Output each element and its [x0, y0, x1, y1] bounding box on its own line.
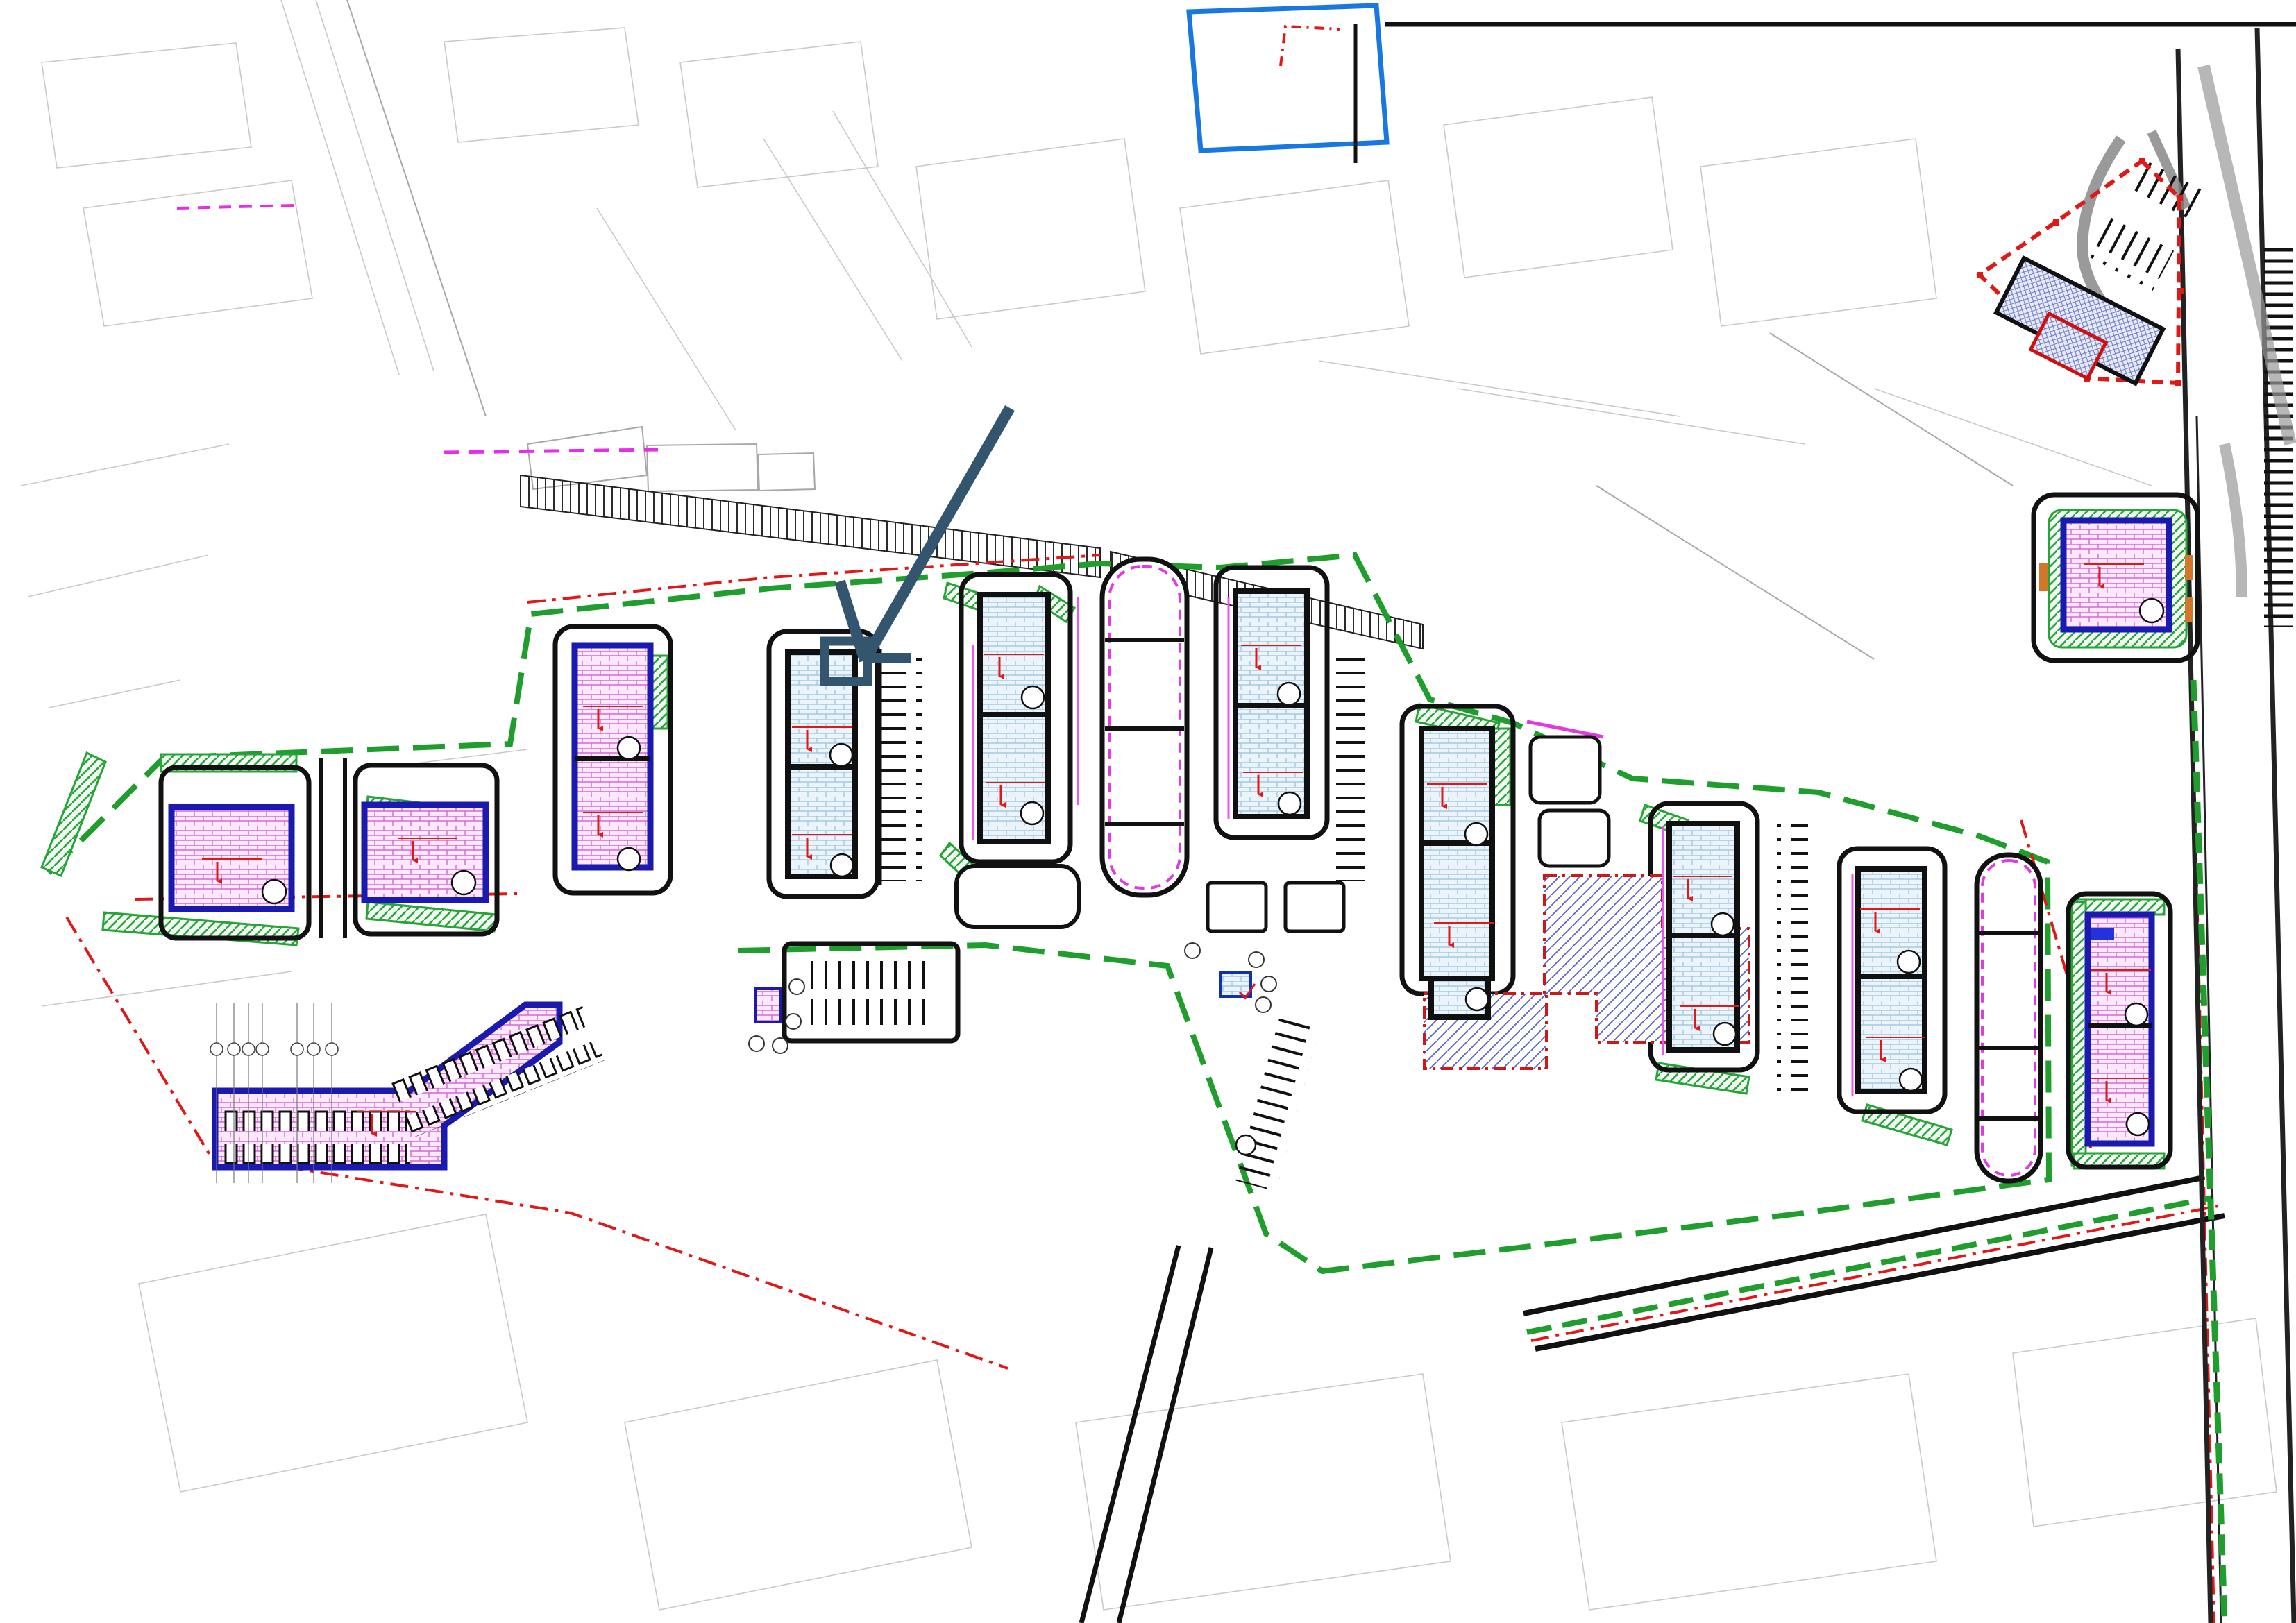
- zone-small-boxes: [1208, 883, 1344, 931]
- building-8: [364, 805, 486, 900]
- site-plan: [0, 0, 2296, 1623]
- zone-under-5: [956, 866, 1079, 927]
- garage-building: [210, 1003, 605, 1183]
- red-boundary-small: [1281, 26, 1340, 66]
- zone-column-d: [1977, 855, 2041, 1181]
- building-4: [1235, 591, 1307, 817]
- building-11: [2088, 915, 2152, 1144]
- building-2: [1669, 824, 1739, 1050]
- entrance-marker: [2091, 928, 2114, 940]
- utility-line-magenta: [444, 450, 658, 452]
- building-10: [2039, 520, 2193, 629]
- building-3: [1421, 729, 1494, 1017]
- building-9: [171, 807, 292, 909]
- utility-line-magenta-2: [177, 205, 295, 208]
- base-map-lines-2: [347, 0, 2013, 659]
- building-5: [980, 595, 1048, 842]
- building-1: [1858, 869, 1925, 1091]
- zone-column-a: [1102, 559, 1187, 895]
- building-7: [575, 645, 650, 870]
- zones-right-of-3: [1527, 722, 1609, 866]
